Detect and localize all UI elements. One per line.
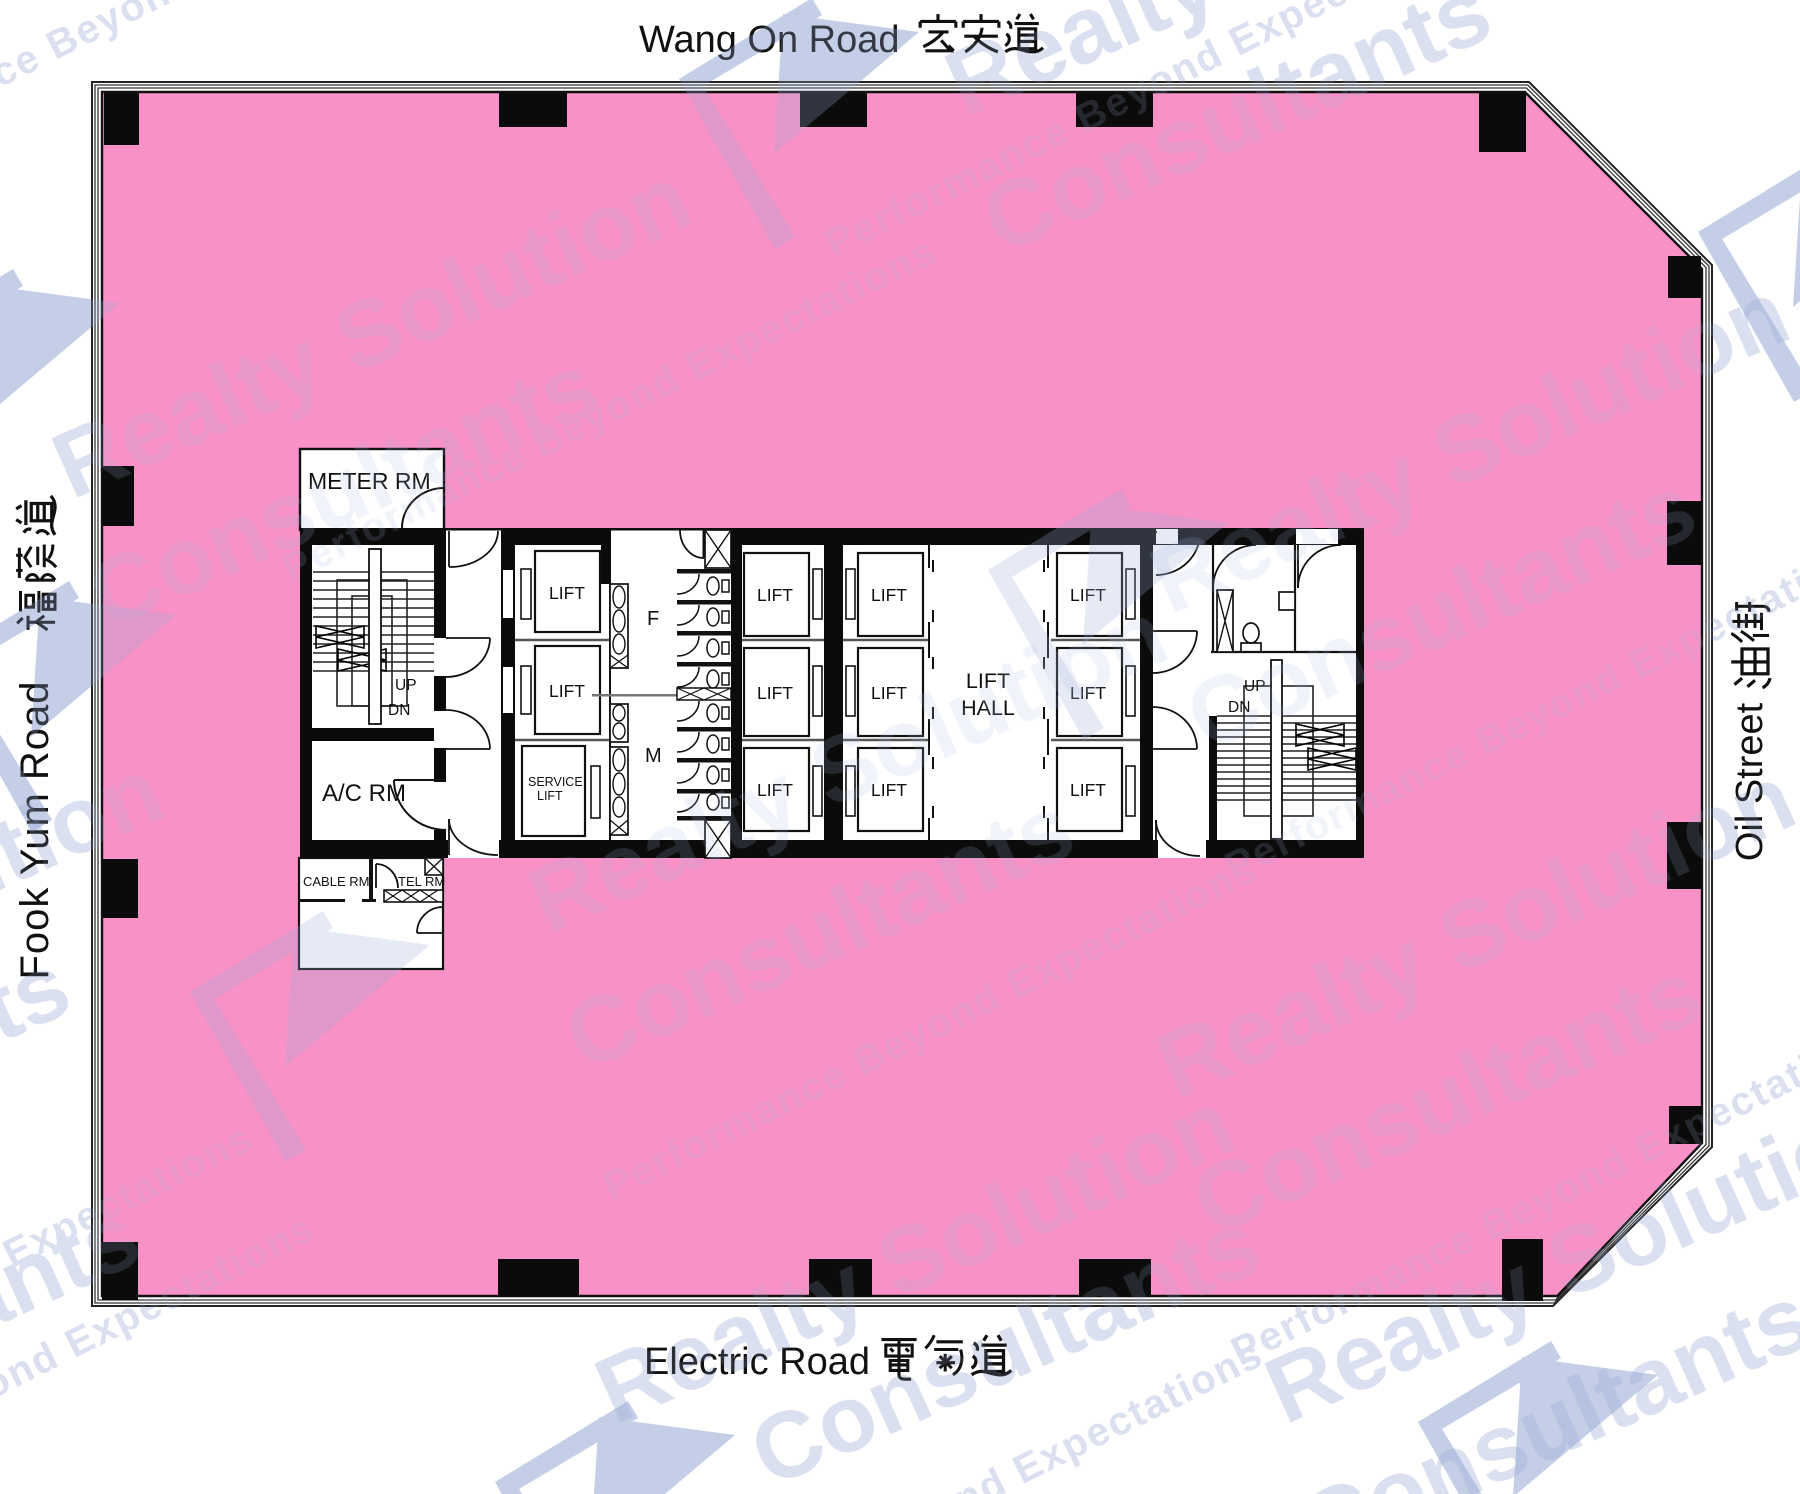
svg-text:M: M [645, 745, 662, 767]
svg-text:DN: DN [388, 702, 410, 719]
svg-text:CABLE RM: CABLE RM [303, 874, 369, 889]
svg-text:LIFT: LIFT [757, 585, 793, 605]
svg-text:LIFT: LIFT [757, 683, 793, 703]
svg-text:F: F [647, 608, 659, 630]
svg-text:LIFT: LIFT [549, 681, 585, 701]
svg-text:UP: UP [395, 677, 417, 694]
svg-text:LIFT: LIFT [549, 583, 585, 603]
svg-text:SERVICE: SERVICE [528, 775, 583, 789]
svg-text:TEL RM: TEL RM [398, 874, 445, 889]
svg-text:LIFT: LIFT [537, 789, 563, 803]
svg-text:LIFT: LIFT [871, 585, 907, 605]
svg-text:LIFT: LIFT [1070, 780, 1106, 800]
